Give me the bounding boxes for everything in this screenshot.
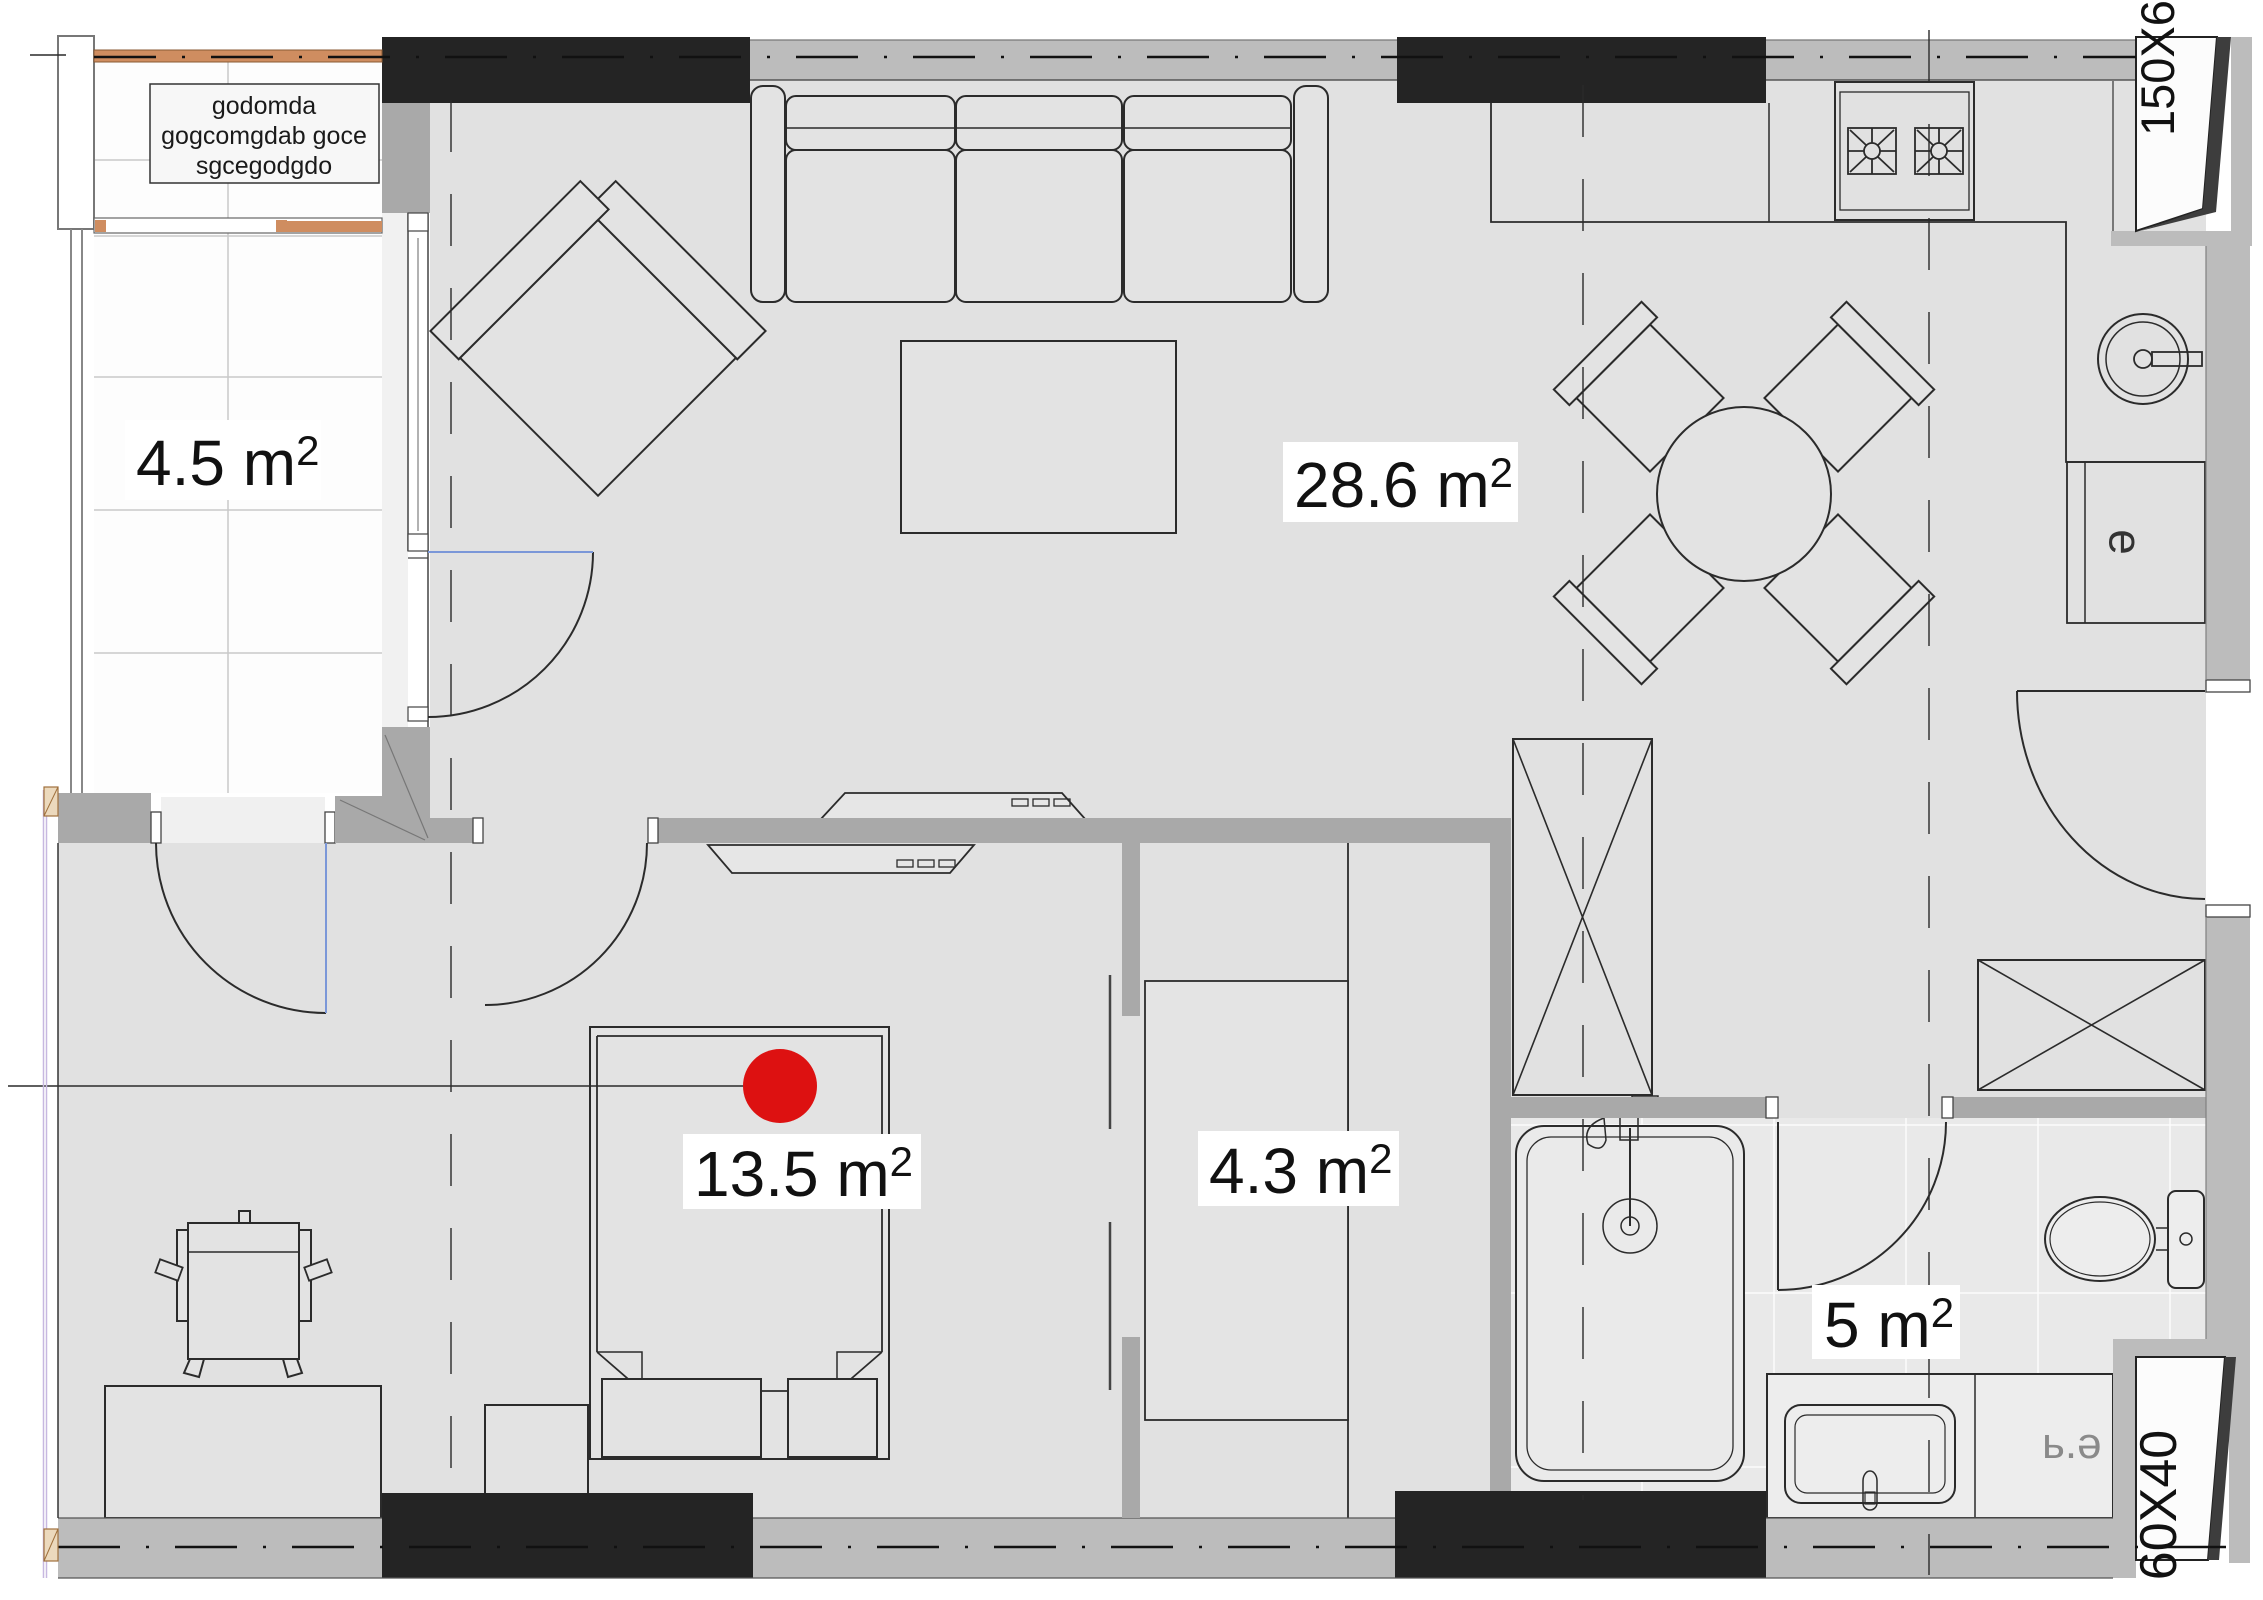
- svg-text:godomda: godomda: [212, 92, 316, 120]
- svg-text:4.3 m2: 4.3 m2: [1209, 1135, 1392, 1207]
- svg-text:28.6 m2: 28.6 m2: [1294, 449, 1513, 521]
- svg-text:4.5 m2: 4.5 m2: [136, 427, 319, 499]
- svg-text:150X60: 150X60: [2131, 0, 2184, 136]
- svg-text:60X40: 60X40: [2130, 1430, 2188, 1580]
- svg-text:sgcegodgdo: sgcegodgdo: [196, 152, 332, 180]
- svg-text:13.5 m2: 13.5 m2: [694, 1138, 913, 1210]
- svg-text:ь.ә: ь.ә: [2042, 1419, 2102, 1468]
- svg-text:ә: ә: [2092, 529, 2144, 555]
- svg-text:gogcomgdab goce: gogcomgdab goce: [161, 122, 367, 150]
